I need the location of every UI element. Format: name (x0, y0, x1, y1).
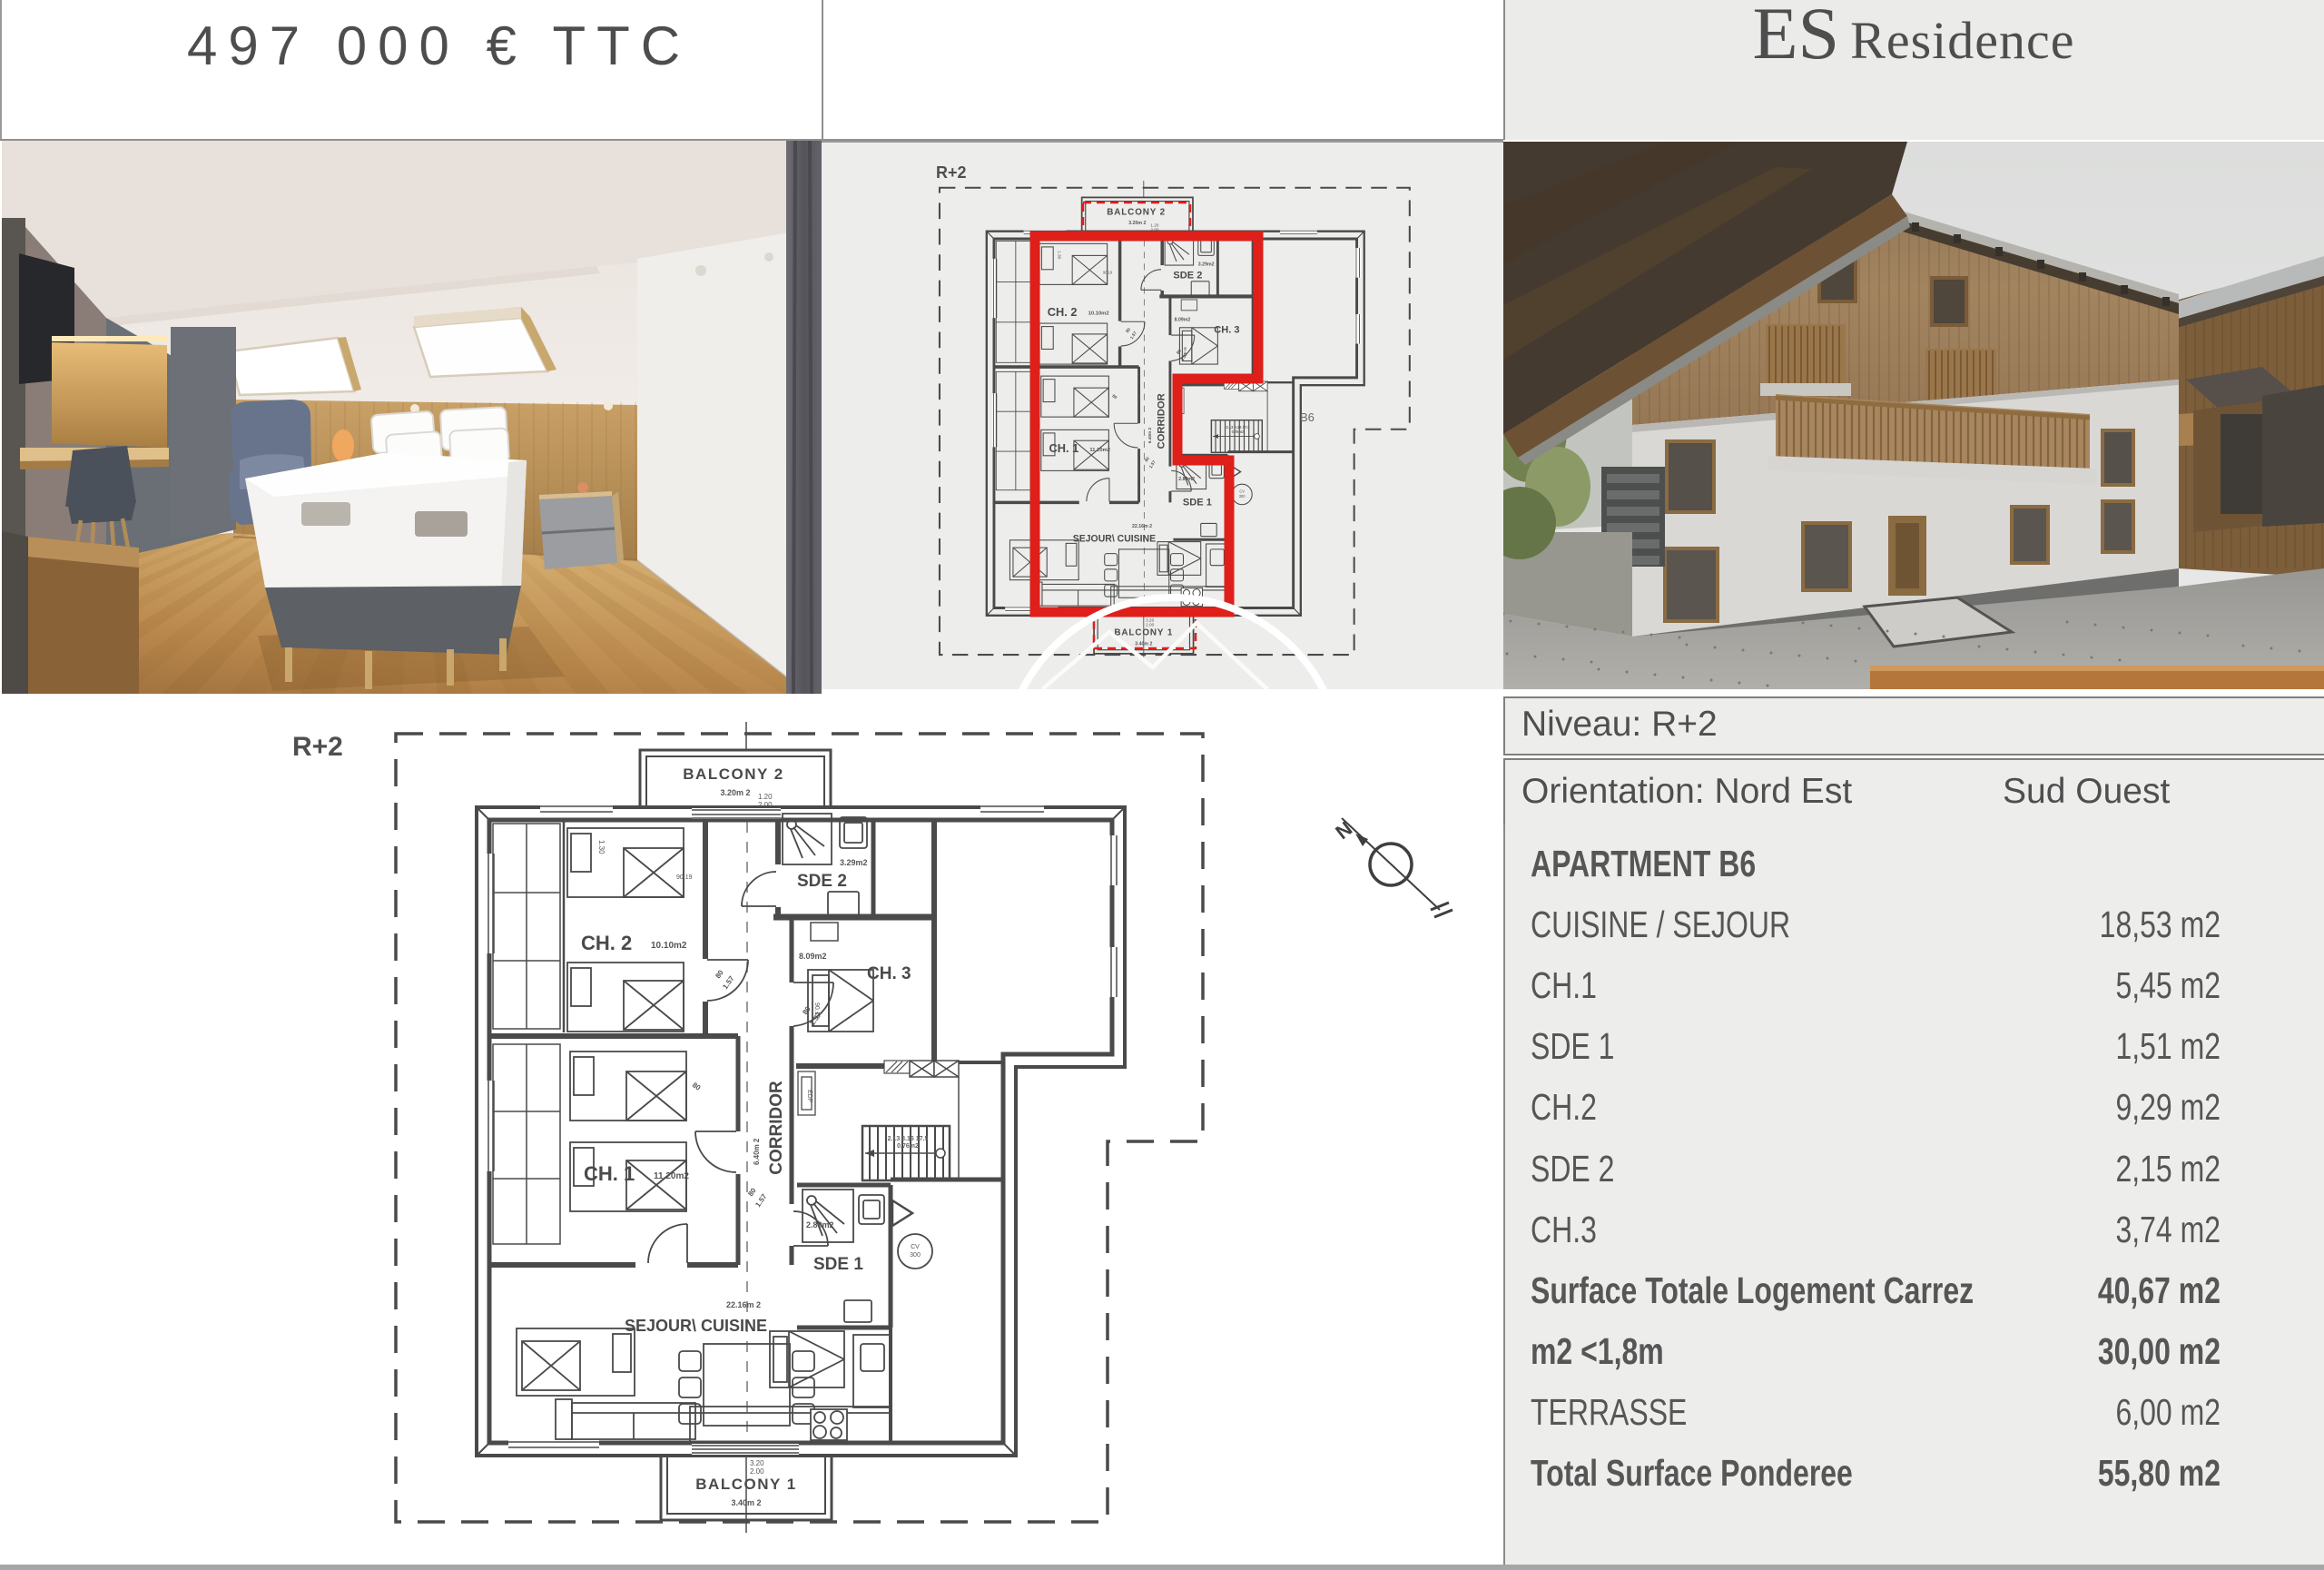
svg-text:N: N (1331, 817, 1356, 844)
svg-text:R+2: R+2 (936, 163, 967, 182)
svg-text:R+2: R+2 (292, 732, 343, 762)
svg-text:B6: B6 (1300, 410, 1315, 424)
